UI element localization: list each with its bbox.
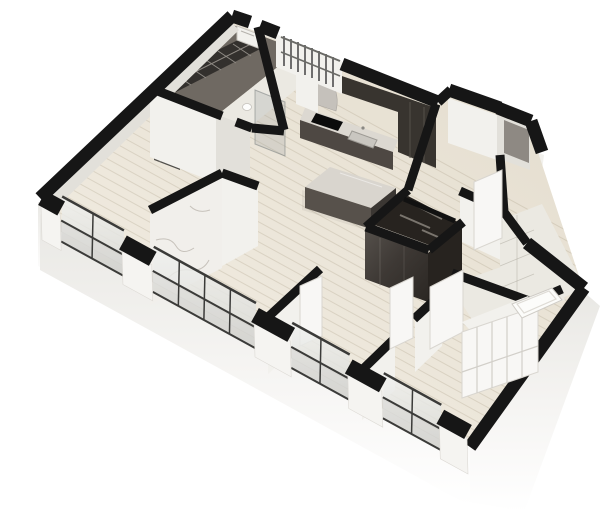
faucet [361, 126, 364, 129]
bedroom2-door [390, 277, 413, 349]
pier-cap [42, 198, 61, 209]
floor-plan-svg [0, 0, 600, 512]
hall-door [474, 170, 502, 250]
toilet [243, 104, 252, 111]
floor-plan-stage [0, 0, 600, 512]
